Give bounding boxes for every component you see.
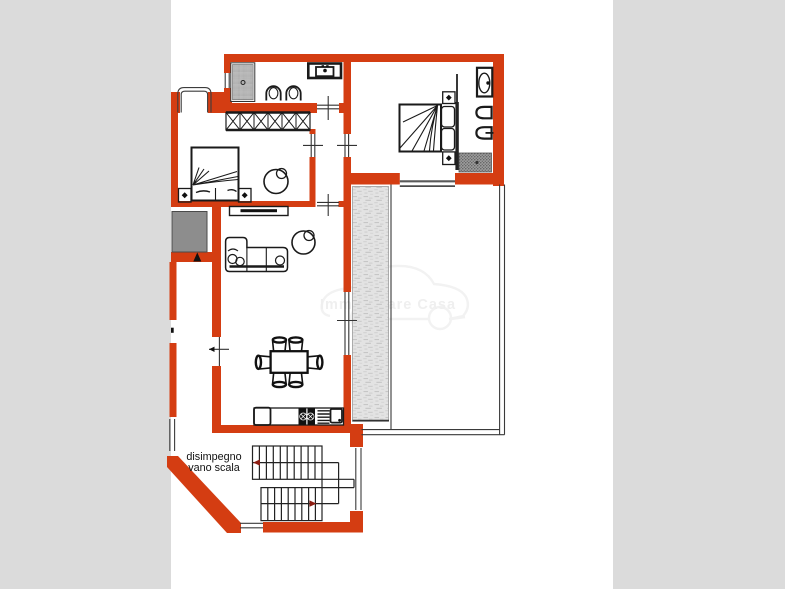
svg-text:vano scala: vano scala [188, 462, 240, 474]
